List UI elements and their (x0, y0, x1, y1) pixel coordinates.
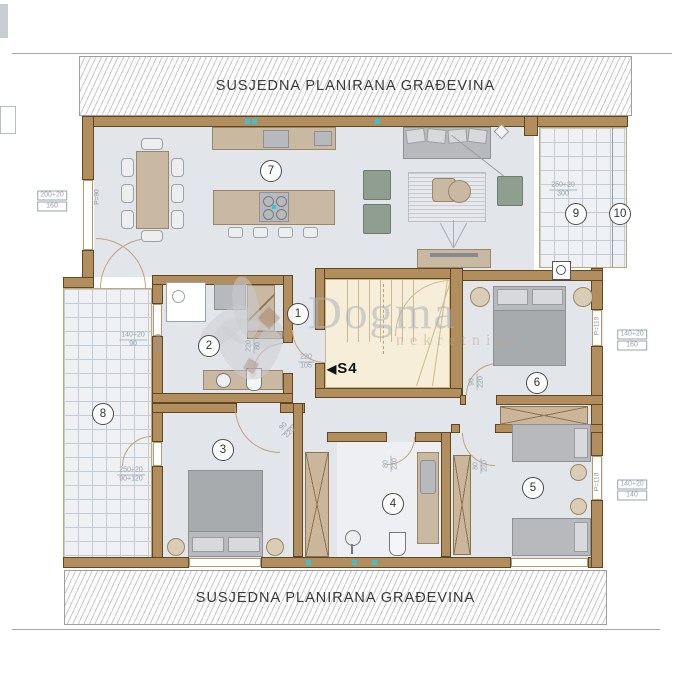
dining-chair (121, 210, 134, 229)
dimension-text: 160 (617, 341, 647, 351)
dimension-label: 220105 (298, 354, 314, 371)
dimension-text: 220 (246, 338, 255, 354)
nightstand (266, 538, 284, 556)
stair-label-text: S4 (337, 360, 357, 377)
neighbor-building-band-bottom: SUSJEDNA PLANIRANA GRAĐEVINA (64, 570, 607, 625)
wall-segment (82, 116, 628, 127)
pillow (532, 289, 563, 305)
wardrobe (500, 406, 588, 425)
parapet-label: P=110 (594, 317, 601, 336)
dimension-text: 140 (617, 491, 647, 501)
wall-segment (591, 500, 603, 568)
floor-plan-canvas: SUSJEDNA PLANIRANA GRAĐEVINA SUSJEDNA PL… (0, 0, 687, 690)
dimension-label: 140+20160 (617, 330, 647, 351)
dimension-label: 140+2090 (119, 332, 147, 349)
dimension-label: 80220 (473, 458, 490, 474)
sofa-cushion (405, 128, 426, 145)
dimension-text: 220 (298, 354, 314, 363)
dimension-text: 90+120 (117, 476, 145, 484)
dining-chair (141, 230, 163, 242)
nightstand (570, 498, 587, 515)
dimension-text: 80 (473, 458, 482, 474)
tv-console (417, 249, 491, 268)
parapet-label: P=110 (156, 334, 163, 353)
kitchen-sink (263, 130, 289, 148)
edge-artifact (0, 4, 8, 38)
wall-segment (451, 424, 460, 433)
dining-chair (171, 184, 184, 203)
wall-segment (327, 432, 387, 442)
window-segment (189, 558, 261, 567)
bar-stool (253, 227, 268, 238)
window-segment (153, 442, 162, 466)
dimension-label: 200+20160 (37, 191, 67, 212)
room-badge-8: 8 (92, 403, 114, 425)
site-boundary-line-top (12, 53, 672, 54)
bar-stool (303, 227, 318, 238)
room-badge-4: 4 (382, 493, 404, 515)
dimension-text: 80 (383, 456, 392, 472)
dining-chair (171, 158, 184, 177)
dimension-text: 220 (478, 374, 486, 390)
pillow (192, 537, 224, 552)
pillow (228, 537, 260, 552)
dimension-label: 250+20300 (549, 182, 577, 199)
nightstand (470, 287, 490, 307)
wall-segment (152, 403, 237, 413)
dimension-text: 80 (255, 338, 263, 354)
wall-segment (152, 284, 163, 304)
wall-segment (460, 270, 603, 281)
kitchen-appliance (314, 131, 332, 146)
window-segment (511, 558, 588, 567)
dimension-text: 90 (469, 374, 478, 390)
window-marker (252, 119, 257, 124)
dimension-text: 250+20 (117, 467, 145, 476)
washing-machine (420, 460, 436, 494)
sofa-cushion (447, 128, 467, 144)
room-badge-9: 9 (565, 203, 587, 225)
pillow (574, 522, 588, 552)
site-boundary-line-bottom (12, 629, 660, 630)
toilet (389, 532, 406, 556)
parapet-label: P=110 (594, 473, 601, 492)
sofa-cushion (467, 128, 488, 144)
wall-segment (524, 116, 538, 136)
pedestal-sink (345, 530, 361, 546)
tv-screen (430, 253, 478, 257)
room-badge-3: 3 (212, 439, 234, 461)
sofa-cushion (426, 128, 446, 144)
bar-stool (278, 227, 293, 238)
wall-segment (63, 277, 94, 288)
room-badge-5: 5 (522, 477, 544, 499)
armchair (363, 204, 391, 234)
room-badge-10: 10 (609, 203, 631, 225)
dining-chair (171, 210, 184, 229)
parapet-label: P=90 (94, 189, 101, 204)
window-marker (306, 560, 311, 565)
room-badge-7: 7 (260, 160, 282, 182)
dimension-text: 105 (298, 363, 314, 371)
window-segment (153, 304, 162, 336)
dimension-label: 140+20140 (617, 480, 647, 501)
wall-segment (152, 466, 163, 567)
nightstand (570, 464, 587, 481)
pillow (497, 289, 528, 305)
armchair (497, 176, 523, 206)
window-marker (375, 119, 380, 124)
nightstand (573, 287, 593, 307)
terrace-divider-line (612, 127, 613, 268)
wall-segment (496, 395, 603, 405)
wardrobe (453, 455, 471, 555)
wall-segment (82, 116, 94, 180)
neighbor-label-bottom: SUSJEDNA PLANIRANA GRAĐEVINA (196, 590, 475, 606)
dimension-label: 22080 (246, 338, 263, 354)
dining-chair (141, 138, 163, 150)
cooktop-burner (276, 209, 287, 220)
dimension-text: 300 (549, 191, 577, 199)
dimension-text: 250+20 (549, 182, 577, 191)
stair-label: ◀S4 (327, 360, 358, 377)
coffee-table-round (448, 180, 471, 203)
cropped-dim-box (0, 106, 16, 134)
window-marker (372, 560, 377, 565)
pillow (574, 428, 588, 458)
wall-segment (441, 432, 451, 557)
wall-segment (315, 268, 460, 279)
stair-arrow-icon: ◀ (327, 362, 337, 376)
room-badge-6: 6 (526, 372, 548, 394)
cooktop-burner (263, 209, 274, 220)
dimension-text: 220 (482, 458, 490, 474)
dimension-text: 160 (37, 202, 67, 212)
bar-stool (228, 227, 243, 238)
dimension-text: 90 (119, 341, 147, 349)
dimension-text: 220 (392, 456, 400, 472)
neighbor-label-top: SUSJEDNA PLANIRANA GRAĐEVINA (216, 78, 495, 94)
dimension-label: 90220 (469, 374, 486, 390)
wall-segment (63, 557, 189, 568)
duvet (188, 470, 263, 532)
sink-pedestal (351, 544, 353, 554)
wall-segment (315, 388, 462, 398)
room-badge-1: 1 (287, 303, 309, 325)
dimension-text: 140+20 (119, 332, 147, 341)
window-marker (352, 560, 357, 565)
wall-segment (261, 557, 511, 568)
cooktop-marker (272, 205, 276, 209)
nightstand (167, 538, 185, 556)
dimension-text: 200+20 (37, 191, 67, 201)
armchair (363, 170, 391, 200)
dining-chair (121, 158, 134, 177)
room-badge-2: 2 (198, 335, 220, 357)
dimension-text: 140+20 (617, 330, 647, 340)
neighbor-building-band-top: SUSJEDNA PLANIRANA GRAĐEVINA (79, 56, 632, 116)
window-segment (83, 180, 93, 250)
dining-table (136, 151, 169, 229)
window-marker (245, 119, 250, 124)
cooktop-burner (276, 196, 287, 207)
dimension-label: 80220 (383, 456, 400, 472)
wardrobe (305, 452, 329, 557)
dining-chair (121, 184, 134, 203)
chimney-flue (556, 265, 566, 275)
watermark-subtitle: nekretnine (396, 332, 524, 350)
dimension-text: 140+20 (617, 480, 647, 490)
dimension-label: 250+2090+120 (117, 467, 145, 484)
wall-segment (460, 395, 466, 405)
